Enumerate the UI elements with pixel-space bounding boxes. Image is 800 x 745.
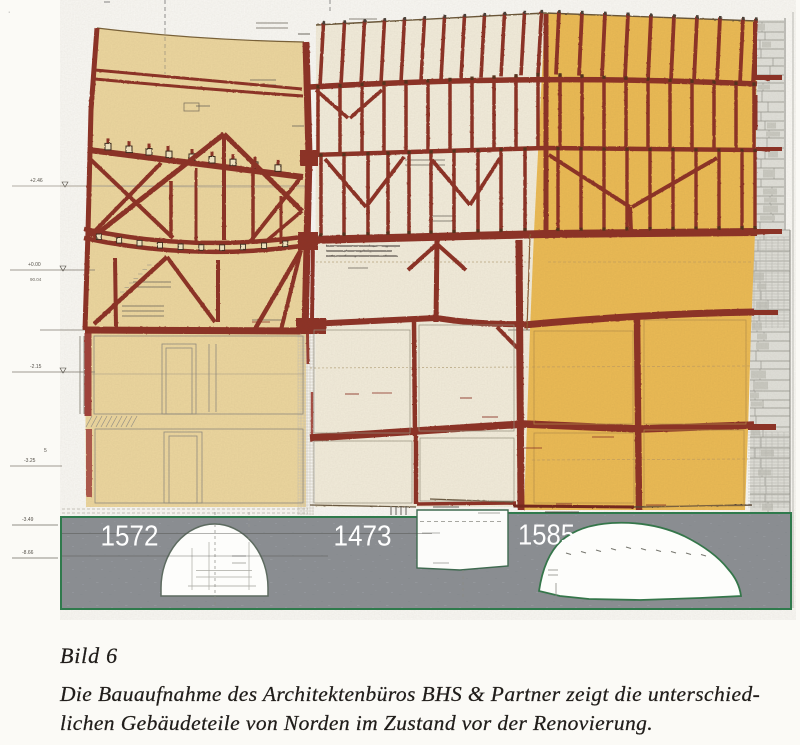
svg-text:5: 5 <box>44 448 47 454</box>
svg-text:1585: 1585 <box>518 520 575 552</box>
svg-text:-8.66: -8.66 <box>22 550 34 556</box>
svg-text:·: · <box>8 9 10 16</box>
svg-text:+0.00: +0.00 <box>28 262 41 268</box>
svg-text:-3.49: -3.49 <box>22 517 34 523</box>
svg-text:-3.25: -3.25 <box>24 458 36 464</box>
svg-text:+2.46: +2.46 <box>30 178 43 184</box>
svg-text:1572: 1572 <box>101 521 159 553</box>
svg-text:-2.15: -2.15 <box>30 364 42 370</box>
svg-text:1473: 1473 <box>334 521 392 553</box>
svg-text:90.04: 90.04 <box>30 277 42 282</box>
